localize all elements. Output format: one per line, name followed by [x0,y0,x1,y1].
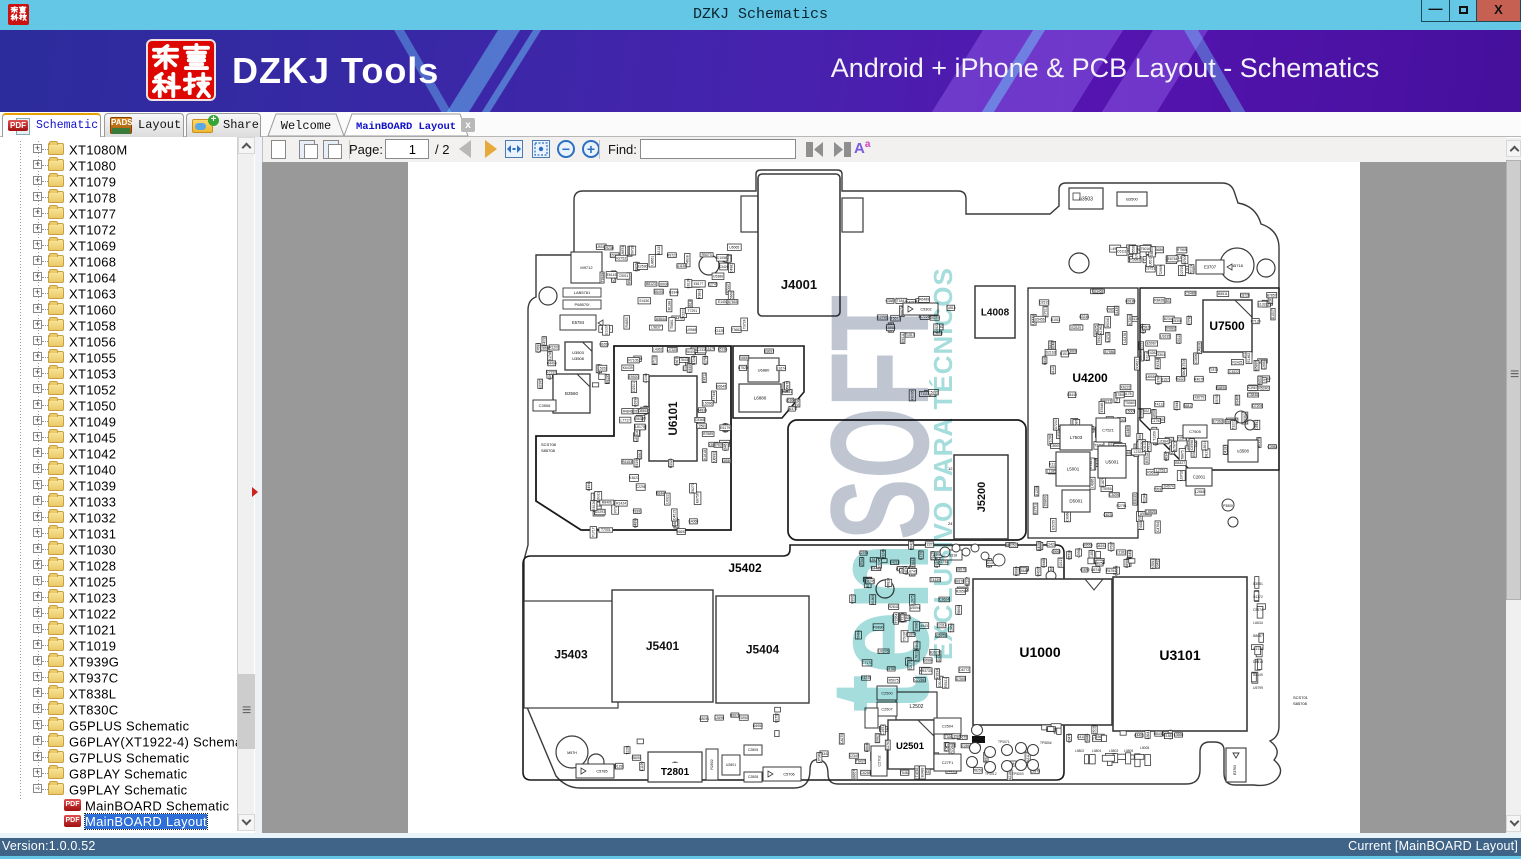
svg-text:E8126: E8126 [592,501,596,511]
svg-text:K9355: K9355 [688,363,692,373]
svg-text:B7653: B7653 [728,300,738,304]
svg-text:T3724: T3724 [742,319,746,329]
svg-text:B4893: B4893 [634,518,638,528]
svg-text:B8687: B8687 [1253,634,1263,638]
svg-text:R1200: R1200 [549,346,559,350]
svg-text:U5065: U5065 [729,246,739,250]
svg-text:R9727: R9727 [667,253,677,257]
svg-text:E4060: E4060 [688,520,698,524]
svg-text:U9553: U9553 [1083,544,1093,548]
svg-text:B2395: B2395 [538,379,542,389]
svg-text:E6764: E6764 [1168,257,1178,261]
svg-text:S85708: S85708 [1293,701,1308,706]
svg-text:D2489: D2489 [1126,426,1130,436]
svg-text:R4079: R4079 [1194,377,1204,381]
svg-text:L5352: L5352 [598,366,608,370]
svg-text:U2801: U2801 [726,763,736,767]
svg-text:C5295: C5295 [1109,493,1119,497]
svg-text:B8491: B8491 [654,290,664,294]
svg-text:J5404: J5404 [746,643,780,657]
svg-text:D4187: D4187 [1224,445,1228,455]
svg-text:B2529: B2529 [1071,326,1081,330]
svg-text:T1056: T1056 [1048,435,1052,445]
svg-text:U6347: U6347 [1165,451,1169,461]
svg-text:E4150: E4150 [639,299,649,303]
svg-text:T1359: T1359 [1153,431,1157,441]
svg-text:U5386: U5386 [713,274,723,278]
svg-text:C2504: C2504 [942,724,953,728]
svg-text:D8601: D8601 [638,449,642,459]
svg-text:D8564: D8564 [638,409,648,413]
svg-text:R3803: R3803 [698,289,702,299]
svg-text:C9561: C9561 [1262,359,1266,369]
svg-text:C7505: C7505 [1189,429,1202,434]
svg-text:E5444: E5444 [1175,401,1179,411]
svg-text:C9992: C9992 [1051,550,1061,554]
svg-text:K8569: K8569 [722,459,732,463]
svg-text:E2767: E2767 [886,740,890,750]
svg-text:J5403: J5403 [554,648,588,662]
svg-text:R6401: R6401 [686,350,696,354]
svg-text:E6953: E6953 [739,716,749,720]
svg-text:D4974: D4974 [1164,485,1174,489]
svg-text:C6111: C6111 [1117,250,1127,254]
svg-text:R2526: R2526 [1009,544,1019,548]
svg-text:T7878: T7878 [1208,368,1218,372]
svg-text:U4200: U4200 [1072,371,1108,385]
svg-text:L2865: L2865 [1195,490,1205,494]
svg-text:K5093: K5093 [1215,394,1219,404]
svg-text:B1149: B1149 [1253,673,1263,677]
svg-text:T5861: T5861 [670,319,674,329]
svg-text:E8273: E8273 [691,483,695,493]
svg-text:E6692: E6692 [676,530,686,534]
svg-text:E1674: E1674 [776,366,786,370]
svg-text:C5706: C5706 [783,773,794,777]
svg-text:TP0012: TP0012 [985,772,997,776]
svg-text:R6500: R6500 [1258,375,1262,385]
svg-text:K3426: K3426 [719,265,729,269]
svg-text:TP5003: TP5003 [1012,772,1024,776]
svg-text:T5560: T5560 [1125,401,1135,405]
svg-text:D2501: D2501 [632,382,636,392]
svg-text:TP580#: TP580# [1040,741,1052,745]
svg-text:K7506: K7506 [1182,359,1186,369]
svg-text:R7120: R7120 [1251,319,1261,323]
svg-text:K6994: K6994 [633,397,637,407]
svg-text:B6549: B6549 [716,384,726,388]
svg-text:D4981: D4981 [730,263,734,273]
svg-text:B1439: B1439 [1115,306,1119,316]
svg-text:E6555: E6555 [739,356,749,360]
svg-text:E6139: E6139 [687,278,691,288]
svg-text:B3246: B3246 [1079,315,1089,319]
svg-text:D8308: D8308 [1172,319,1182,323]
svg-text:B5327: B5327 [1175,461,1185,465]
svg-text:D7230: D7230 [1054,419,1058,429]
svg-text:C5025: C5025 [1093,725,1097,735]
svg-text:T4711: T4711 [703,373,707,382]
svg-text:R7262: R7262 [950,743,954,753]
svg-text:L8826: L8826 [1146,510,1156,514]
svg-text:SCS708: SCS708 [541,442,557,447]
svg-text:T5927: T5927 [1097,334,1101,344]
svg-text:T7291: T7291 [688,309,698,313]
svg-text:M9712: M9712 [580,265,593,270]
svg-text:K7782: K7782 [1187,315,1191,325]
svg-text:MainBOARD Layout: MainBOARD Layout [356,121,456,133]
svg-text:L2753: L2753 [1156,469,1166,473]
svg-text:C1651: C1651 [881,725,885,735]
svg-text:R4742: R4742 [1156,359,1160,369]
svg-text:L5001: L5001 [1067,467,1080,472]
svg-text:R2791: R2791 [1117,504,1127,508]
svg-text:T7001: T7001 [601,528,611,532]
svg-text:B8123: B8123 [646,282,656,286]
svg-text:L7503: L7503 [1070,435,1083,440]
svg-text:B3489: B3489 [921,767,925,777]
svg-text:C2702: C2702 [877,755,881,766]
svg-text:U1256: U1256 [1035,486,1039,496]
svg-text:B7689: B7689 [703,432,713,436]
svg-text:U3508: U3508 [572,356,585,361]
svg-text:U6742: U6742 [1091,568,1101,572]
svg-text:J5402: J5402 [728,561,762,575]
svg-text:L6880: L6880 [754,396,767,401]
svg-text:L2591: L2591 [697,424,707,428]
svg-text:U6574: U6574 [621,246,625,256]
svg-text:B8254: B8254 [1095,561,1105,565]
svg-text:B3697: B3697 [764,349,774,353]
svg-text:u3503: u3503 [1079,196,1093,202]
svg-text:U3450: U3450 [1128,549,1132,559]
svg-text:R4321: R4321 [1176,377,1186,381]
svg-text:U8651: U8651 [650,256,654,266]
svg-text:L7717: L7717 [620,418,630,422]
svg-text:C5785: C5785 [596,770,607,774]
svg-text:C1190: C1190 [640,761,644,771]
svg-text:C7637: C7637 [1109,542,1113,552]
svg-text:C2808: C2808 [748,775,758,779]
svg-text:L2422: L2422 [1046,543,1056,547]
svg-text:U6880: U6880 [758,367,771,372]
svg-text:D3340: D3340 [669,291,679,295]
svg-text:D2163: D2163 [1046,351,1056,355]
svg-text:E8640: E8640 [865,742,869,752]
svg-text:E7979: E7979 [1172,441,1176,451]
svg-text:D8434: D8434 [1154,732,1164,736]
svg-text:U6986: U6986 [1146,375,1156,379]
svg-text:D6869: D6869 [1044,496,1048,506]
svg-text:R7105: R7105 [628,358,638,362]
svg-text:T4783: T4783 [915,767,919,777]
svg-text:D3435: D3435 [1156,559,1160,569]
svg-text:U5873: U5873 [785,381,789,391]
svg-text:K9467: K9467 [1236,395,1240,405]
svg-text:R2753: R2753 [616,256,626,260]
svg-text:D7204: D7204 [1252,404,1262,408]
svg-text:U6930: U6930 [659,282,669,286]
svg-text:D1507: D1507 [1271,309,1275,319]
svg-text:R5670: R5670 [675,356,679,366]
svg-text:U5001: U5001 [1105,460,1119,465]
svg-text:C8909: C8909 [1050,444,1060,448]
svg-text:E4941: E4941 [587,481,591,491]
svg-text:T5482: T5482 [900,771,910,775]
svg-text:C2805: C2805 [748,748,758,752]
svg-text:R1519: R1519 [1060,352,1070,356]
svg-text:E7311: E7311 [1044,307,1048,317]
svg-text:C8368: C8368 [1066,511,1070,521]
svg-text:L6373: L6373 [787,407,797,411]
svg-text:B6657: B6657 [853,770,857,780]
svg-text:T8391: T8391 [632,509,642,513]
svg-text:K5591: K5591 [1151,559,1155,569]
svg-text:C3983: C3983 [1267,445,1277,449]
svg-text:R3522: R3522 [669,458,673,468]
svg-text:C9561: C9561 [1077,547,1081,557]
svg-text:D6772: D6772 [959,668,969,672]
svg-text:C5009: C5009 [1125,410,1135,414]
svg-text:L5008: L5008 [1140,746,1149,750]
svg-text:M57H: M57H [567,751,577,755]
svg-text:C5644: C5644 [1018,569,1028,573]
svg-text:LAB5781: LAB5781 [574,290,591,295]
svg-text:B8195: B8195 [605,374,609,384]
svg-text:D1519: D1519 [1039,301,1049,305]
svg-text:E3707: E3707 [1204,264,1217,269]
svg-text:B7523: B7523 [738,366,748,370]
svg-text:D2127: D2127 [1059,557,1063,567]
svg-text:C5896: C5896 [1194,353,1198,363]
svg-text:C9442: C9442 [1255,420,1259,430]
svg-text:R9189: R9189 [1125,300,1135,304]
svg-text:B1172: B1172 [1253,595,1263,599]
svg-text:R8091: R8091 [632,756,642,760]
svg-text:D1291: D1291 [614,764,624,768]
svg-text:R4846: R4846 [623,409,633,413]
svg-text:T1717: T1717 [592,527,596,537]
svg-text:C3846: C3846 [1248,393,1258,397]
svg-text:B7857: B7857 [1267,293,1277,297]
svg-text:C7693: C7693 [536,343,540,353]
svg-text:L8914: L8914 [1203,441,1207,451]
svg-text:C2298: C2298 [636,485,646,489]
svg-text:E2530: E2530 [638,265,648,269]
svg-text:C1058: C1058 [717,256,727,260]
svg-text:R2344: R2344 [1142,493,1146,503]
svg-text:K6439: K6439 [623,366,633,370]
svg-text:T8259: T8259 [973,769,983,773]
svg-text:D2729: D2729 [1180,265,1184,275]
svg-text:L9751: L9751 [1146,267,1156,271]
svg-text:U3101: U3101 [1159,647,1200,663]
svg-text:L4385: L4385 [1091,478,1095,488]
svg-text:U5799: U5799 [1253,686,1263,690]
svg-text:B2137: B2137 [657,245,661,255]
svg-text:E8449: E8449 [1067,393,1077,397]
svg-text:S85708: S85708 [541,448,556,453]
svg-text:B3500: B3500 [1126,196,1138,201]
svg-text:R4853: R4853 [625,317,629,327]
svg-text:T2801: T2801 [661,767,690,778]
svg-text:K1962: K1962 [1099,324,1103,334]
svg-text:E5055: E5055 [1051,520,1055,530]
svg-text:C6258: C6258 [861,771,871,775]
svg-text:C9574: C9574 [1253,608,1263,612]
svg-text:D6728: D6728 [631,245,635,255]
svg-text:K4621: K4621 [1135,359,1139,369]
svg-text:R5825: R5825 [1141,325,1151,329]
svg-text:T3662: T3662 [732,328,742,332]
svg-text:EXCLUSIVO PARA TÉCNICOS: EXCLUSIVO PARA TÉCNICOS [928,267,958,660]
svg-text:U7349: U7349 [818,752,822,762]
svg-text:K2743: K2743 [708,283,718,287]
svg-text:K2349: K2349 [849,754,859,758]
svg-text:K6689: K6689 [1015,566,1019,576]
svg-text:R7965: R7965 [1177,248,1187,252]
svg-text:D8192: D8192 [1096,544,1106,548]
svg-text:T3201: T3201 [1232,420,1236,430]
svg-text:L6922: L6922 [666,494,670,504]
svg-text:E1331: E1331 [1258,302,1268,306]
svg-text:L5186: L5186 [718,348,728,352]
svg-text:D9238: D9238 [604,246,614,250]
svg-text:U9565: U9565 [687,328,697,332]
svg-text:R5073: R5073 [702,253,712,257]
svg-text:L8170: L8170 [635,425,645,429]
svg-text:D4515: D4515 [673,510,677,520]
svg-text:B3560: B3560 [565,391,579,396]
svg-text:B1188: B1188 [667,301,671,311]
svg-text:E1182: E1182 [1116,551,1126,555]
svg-text:K7806: K7806 [1115,393,1125,397]
svg-text:C5011: C5011 [619,274,629,278]
svg-text:B9973: B9973 [730,713,740,717]
svg-text:E5967: E5967 [1147,342,1157,346]
svg-text:D4833: D4833 [697,408,707,412]
svg-text:U3503: U3503 [572,350,585,355]
svg-text:E1452: E1452 [718,300,728,304]
svg-text:T2291: T2291 [625,745,629,755]
svg-text:E8177: E8177 [694,282,704,286]
svg-text:L6461: L6461 [724,441,728,451]
svg-text:L1046: L1046 [644,373,648,383]
svg-text:K1692: K1692 [1080,568,1090,572]
svg-text:U5533: U5533 [1067,550,1071,560]
svg-text:E3787: E3787 [1157,375,1161,385]
svg-text:U5456: U5456 [1035,317,1045,321]
svg-text:R8406: R8406 [602,501,612,505]
svg-text:E6340: E6340 [1106,317,1110,327]
svg-text:D8816: D8816 [1253,660,1263,664]
svg-text:K8756: K8756 [696,493,700,503]
svg-text:T9537: T9537 [1154,487,1164,491]
svg-text:K1618: K1618 [703,450,707,460]
svg-text:R4764: R4764 [1106,569,1116,573]
svg-text:B1745: B1745 [548,351,552,361]
svg-text:L5803: L5803 [1109,749,1118,753]
svg-text:K4401: K4401 [1134,733,1144,737]
svg-text:U1027: U1027 [604,325,608,335]
svg-text:K3621: K3621 [629,476,639,480]
svg-text:K2786: K2786 [704,355,708,365]
svg-text:E7363: E7363 [1213,420,1223,424]
svg-text:U1635: U1635 [1160,335,1170,339]
svg-text:T8875: T8875 [1181,450,1185,460]
svg-text:B5526: B5526 [1131,245,1135,255]
svg-text:R1424: R1424 [616,502,626,506]
svg-text:C27F1: C27F1 [942,761,953,765]
svg-text:B1107: B1107 [965,577,969,587]
svg-text:K7232: K7232 [546,371,556,375]
svg-text:R7937: R7937 [714,443,724,447]
svg-text:C6488: C6488 [1186,292,1196,296]
svg-text:K1136: K1136 [1253,647,1263,651]
svg-text:L3589: L3589 [951,734,961,738]
svg-text:U5844: U5844 [656,317,666,321]
svg-text:L8121: L8121 [1051,365,1055,375]
svg-text:U1478: U1478 [1123,333,1127,343]
svg-text:R2200: R2200 [682,308,686,318]
svg-text:E8035: E8035 [1133,494,1137,504]
svg-text:E5646: E5646 [1100,402,1104,412]
svg-text:T9928: T9928 [600,273,604,283]
svg-text:D1011: D1011 [1051,318,1061,322]
svg-text:L9837: L9837 [651,326,661,330]
svg-text:L6364: L6364 [786,399,796,403]
svg-text:B5890: B5890 [1216,386,1226,390]
svg-text:C8231: C8231 [1103,513,1113,517]
svg-text:E4262: E4262 [1147,351,1157,355]
svg-text:T4112: T4112 [1155,402,1164,406]
svg-text:B7242: B7242 [692,355,696,365]
svg-text:U2752: U2752 [775,713,779,723]
svg-text:R5240: R5240 [1258,386,1268,390]
svg-text:D6483: D6483 [1042,558,1046,568]
svg-text:L1185: L1185 [1047,470,1056,474]
svg-text:C8728: C8728 [1240,293,1250,297]
svg-text:T2669: T2669 [1159,265,1163,275]
svg-text:C1752: C1752 [1151,419,1161,423]
svg-text:E9920: E9920 [629,375,639,379]
svg-text:C8939: C8939 [1152,409,1156,419]
svg-text:L3733: L3733 [1106,332,1110,342]
svg-text:C9598: C9598 [1190,440,1194,450]
svg-text:U8353: U8353 [1043,355,1047,365]
svg-text:P3500: P3500 [1223,504,1233,508]
svg-text:U7325: U7325 [667,348,677,352]
svg-text:C8368: C8368 [695,418,705,422]
svg-text:J5200: J5200 [976,482,988,513]
svg-text:U6992: U6992 [713,452,717,462]
svg-text:K3967: K3967 [1248,386,1258,390]
svg-text:L4008: L4008 [981,308,1010,319]
svg-text:K7364: K7364 [1128,315,1132,325]
svg-text:E5634: E5634 [634,417,644,421]
svg-text:E2791: E2791 [1034,504,1038,514]
svg-text:L3656: L3656 [1174,733,1184,737]
svg-text:U1158: U1158 [677,264,687,268]
svg-text:L3643: L3643 [1146,730,1150,740]
svg-text:P68570I: P68570I [575,302,590,307]
svg-text:E6143: E6143 [607,273,617,277]
svg-text:B3551: B3551 [1253,582,1263,586]
svg-text:R4404: R4404 [547,362,557,366]
svg-text:u3508: u3508 [1237,448,1249,453]
svg-text:E6822: E6822 [876,733,880,743]
svg-text:L5096: L5096 [703,401,713,405]
